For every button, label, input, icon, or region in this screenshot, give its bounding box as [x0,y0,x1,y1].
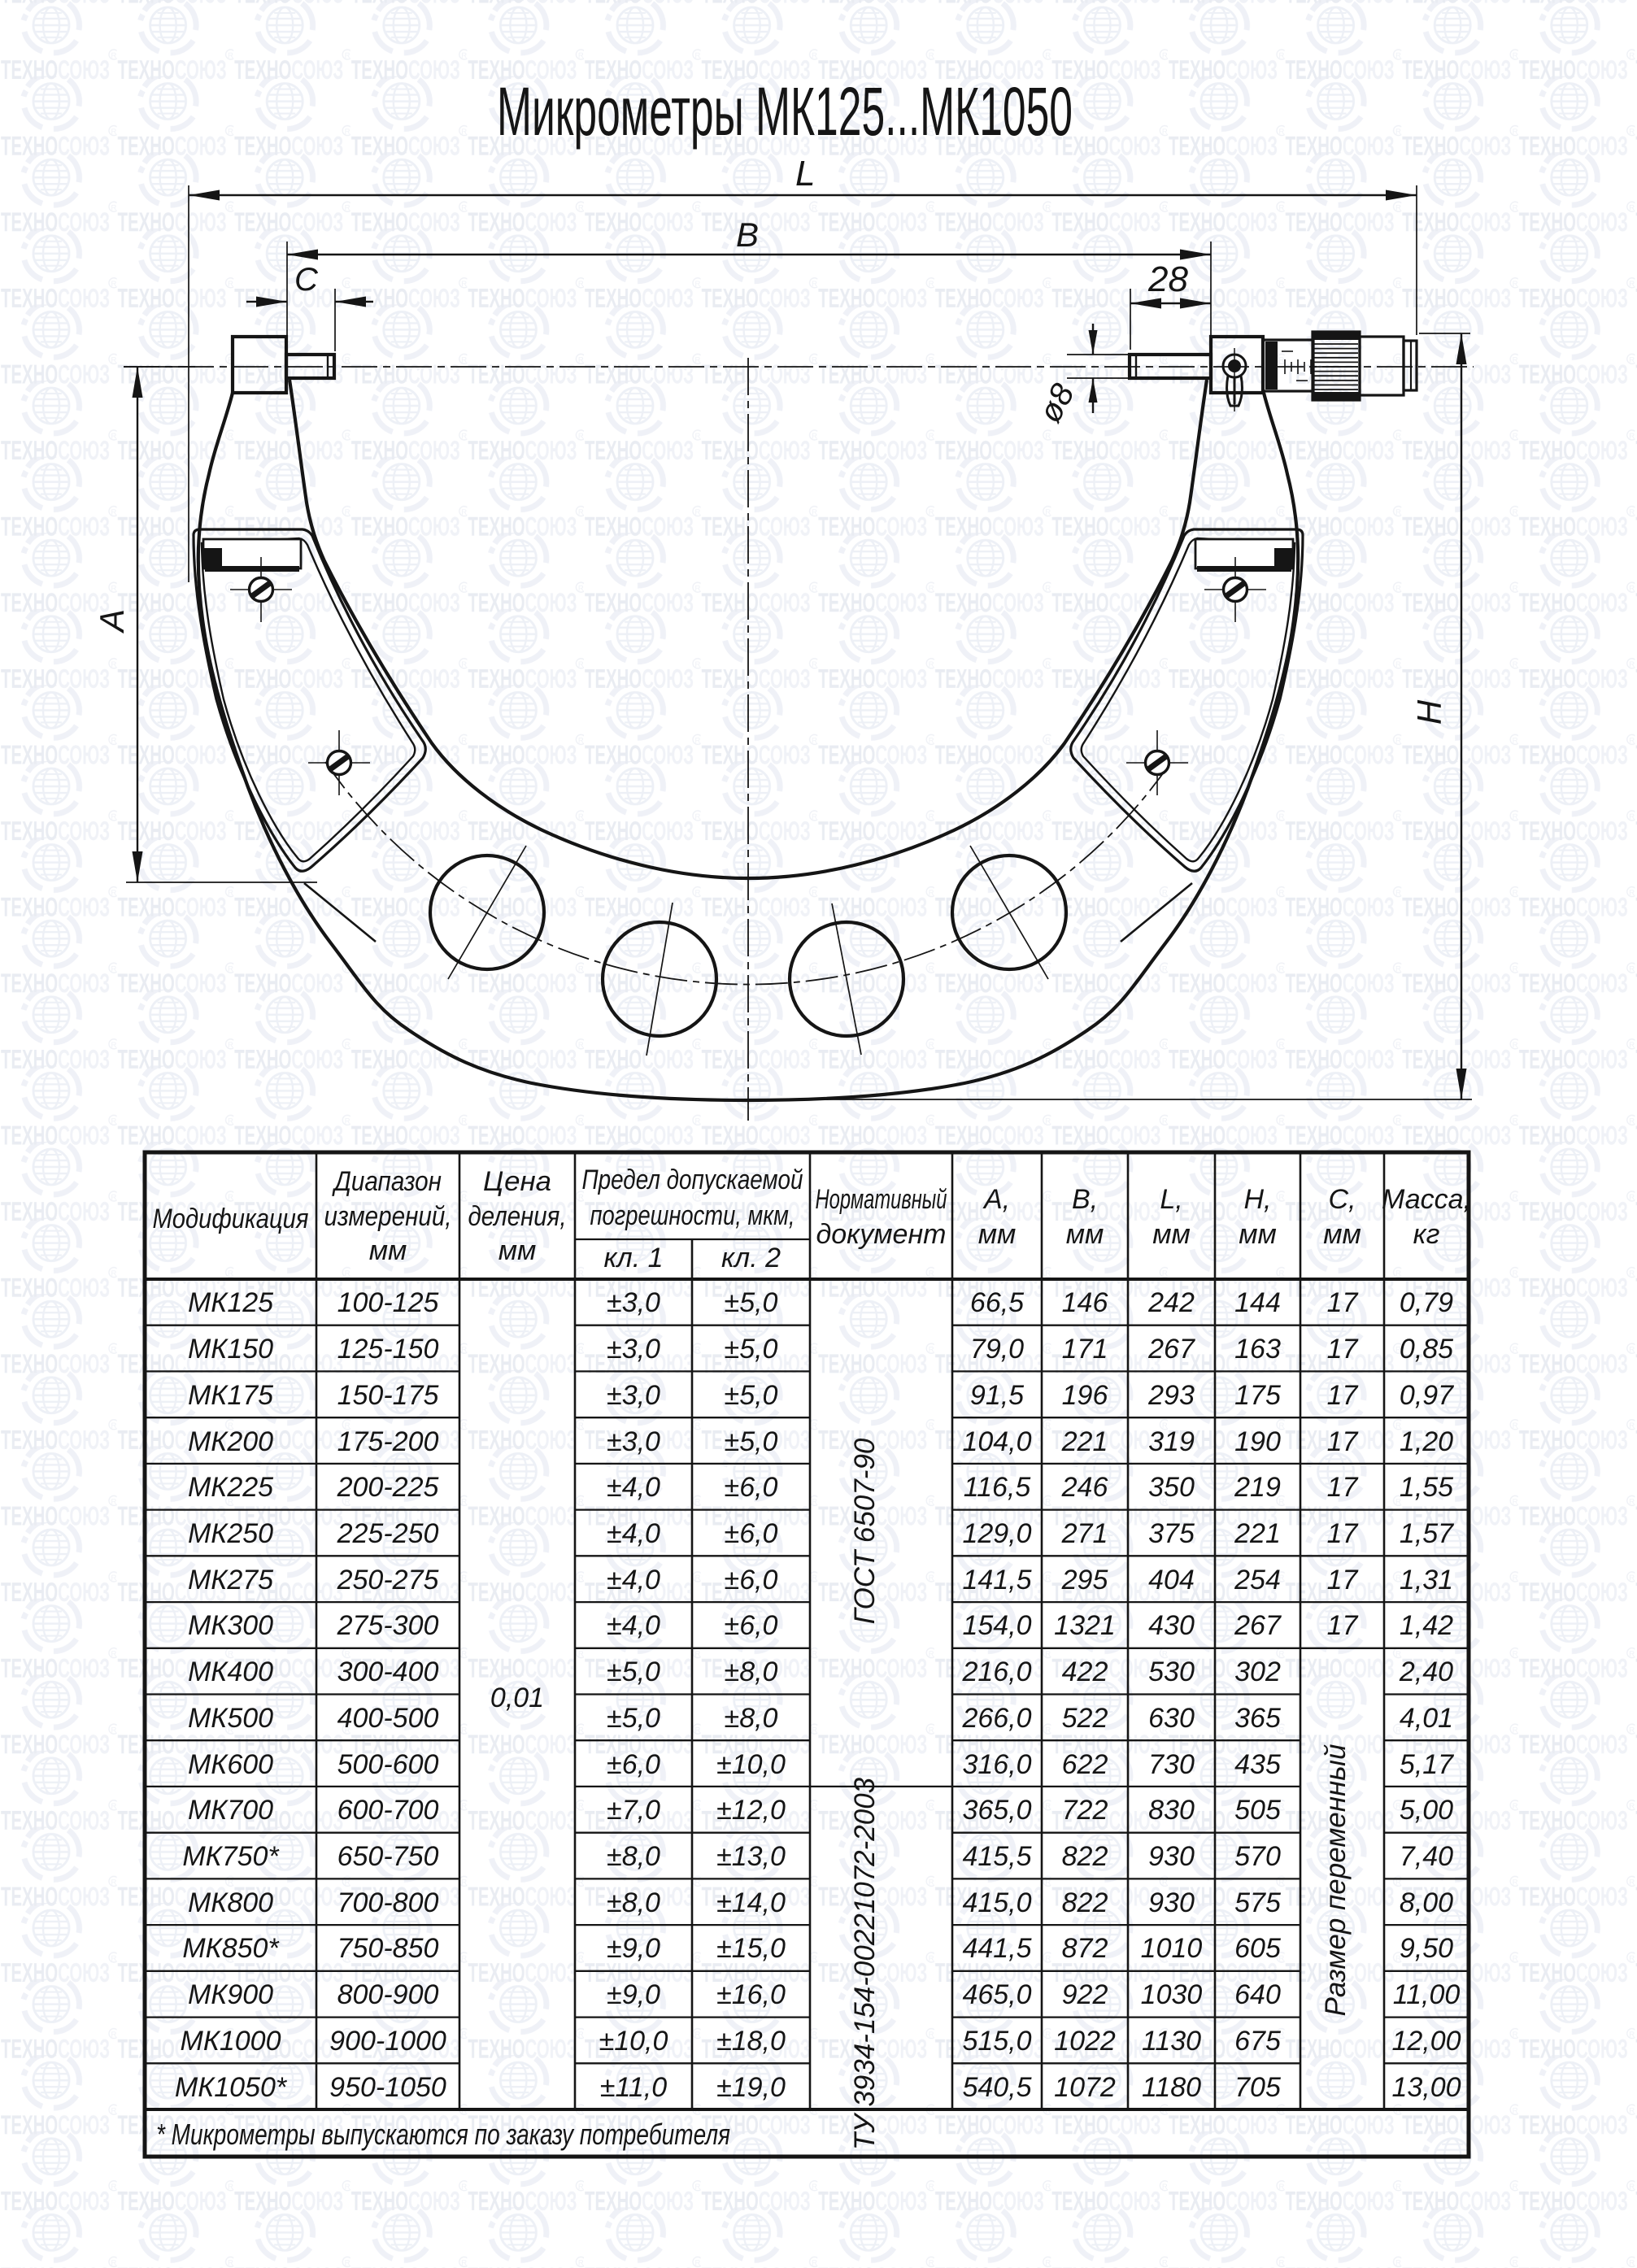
svg-text:Масса,: Масса, [1382,1184,1471,1215]
svg-text:5,17: 5,17 [1400,1749,1454,1780]
svg-text:1,31: 1,31 [1400,1565,1453,1595]
svg-text:622: 622 [1062,1749,1108,1780]
svg-text:±6,0: ±6,0 [725,1610,778,1641]
svg-text:216,0: 216,0 [961,1656,1031,1687]
svg-text:267: 267 [1234,1610,1282,1641]
svg-text:822: 822 [1062,1887,1108,1918]
svg-text:мм: мм [1323,1219,1361,1250]
svg-text:±4,0: ±4,0 [607,1518,660,1549]
svg-text:750-850: 750-850 [337,1933,439,1964]
svg-text:246: 246 [1061,1472,1108,1503]
svg-text:830: 830 [1148,1795,1195,1826]
svg-text:275-300: 275-300 [337,1610,439,1641]
svg-text:17: 17 [1327,1380,1359,1411]
svg-text:±10,0: ±10,0 [599,2026,668,2057]
svg-text:505: 505 [1234,1795,1281,1826]
svg-text:1072: 1072 [1054,2072,1116,2103]
svg-text:28: 28 [1147,259,1188,299]
svg-text:250-275: 250-275 [337,1565,439,1595]
svg-text:295: 295 [1061,1565,1108,1595]
svg-text:930: 930 [1148,1841,1195,1872]
svg-text:17: 17 [1327,1334,1359,1365]
svg-text:293: 293 [1147,1380,1195,1411]
svg-text:515,0: 515,0 [962,2026,1031,2057]
svg-text:221: 221 [1061,1426,1108,1457]
svg-text:7,40: 7,40 [1400,1841,1453,1872]
svg-text:±3,0: ±3,0 [607,1287,660,1318]
svg-text:17: 17 [1327,1287,1359,1318]
svg-text:950-1050: 950-1050 [329,2072,446,2103]
svg-text:1,55: 1,55 [1400,1472,1453,1503]
svg-text:822: 822 [1062,1841,1108,1872]
svg-text:271: 271 [1061,1518,1108,1549]
svg-text:13,00: 13,00 [1391,2072,1461,2103]
svg-text:17: 17 [1327,1565,1359,1595]
svg-text:5,00: 5,00 [1400,1795,1453,1826]
svg-text:430: 430 [1148,1610,1195,1641]
svg-text:±4,0: ±4,0 [607,1472,660,1503]
svg-text:±12,0: ±12,0 [716,1795,786,1826]
svg-text:±7,0: ±7,0 [607,1795,660,1826]
svg-text:МК600: МК600 [188,1749,273,1780]
svg-text:930: 930 [1148,1887,1195,1918]
svg-text:150-175: 150-175 [337,1380,439,1411]
svg-text:* Микрометры выпускаются по за: * Микрометры выпускаются по заказу потре… [156,2118,730,2151]
svg-text:730: 730 [1148,1749,1195,1780]
svg-text:МК900: МК900 [188,1979,273,2010]
svg-text:±5,0: ±5,0 [607,1656,660,1687]
svg-text:154,0: 154,0 [962,1610,1031,1641]
svg-text:500-600: 500-600 [337,1749,439,1780]
svg-text:1130: 1130 [1142,2026,1201,2057]
svg-text:В,: В, [1072,1184,1098,1215]
svg-text:±14,0: ±14,0 [716,1887,786,1918]
svg-text:17: 17 [1327,1426,1359,1457]
svg-text:600-700: 600-700 [337,1795,439,1826]
svg-text:МК125: МК125 [188,1287,273,1318]
svg-text:242: 242 [1147,1287,1195,1318]
svg-text:мм: мм [369,1235,407,1266]
svg-text:МК225: МК225 [188,1472,273,1503]
svg-text:922: 922 [1062,1979,1108,2010]
svg-text:316,0: 316,0 [962,1749,1031,1780]
svg-text:225-250: 225-250 [337,1518,439,1549]
svg-text:Диапазон: Диапазон [332,1166,442,1197]
svg-text:±8,0: ±8,0 [725,1703,778,1734]
svg-text:±6,0: ±6,0 [725,1518,778,1549]
svg-text:Н,: Н, [1244,1184,1272,1215]
svg-text:570: 570 [1234,1841,1281,1872]
svg-text:17: 17 [1327,1518,1359,1549]
svg-text:266,0: 266,0 [961,1703,1031,1734]
svg-text:415,0: 415,0 [962,1887,1031,1918]
svg-text:1321: 1321 [1054,1610,1116,1641]
svg-text:0,01: 0,01 [490,1682,544,1713]
svg-text:±8,0: ±8,0 [607,1841,660,1872]
svg-text:ГОСТ 6507-90: ГОСТ 6507-90 [849,1438,881,1624]
svg-text:±10,0: ±10,0 [716,1749,786,1780]
svg-text:Предел допускаемой: Предел допускаемой [582,1164,803,1195]
svg-text:404: 404 [1148,1565,1195,1595]
svg-text:0,85: 0,85 [1400,1334,1453,1365]
svg-text:±5,0: ±5,0 [725,1380,778,1411]
svg-text:МК250: МК250 [188,1518,273,1549]
svg-text:1,20: 1,20 [1400,1426,1453,1457]
svg-text:МК175: МК175 [188,1380,273,1411]
svg-text:мм: мм [1152,1219,1191,1250]
svg-text:±3,0: ±3,0 [607,1334,660,1365]
svg-text:700-800: 700-800 [337,1887,439,1918]
svg-text:219: 219 [1234,1472,1281,1503]
svg-text:171: 171 [1062,1334,1108,1365]
svg-text:146: 146 [1062,1287,1108,1318]
svg-text:МК400: МК400 [188,1656,273,1687]
svg-text:900-1000: 900-1000 [329,2026,446,2057]
svg-text:522: 522 [1062,1703,1108,1734]
svg-text:17: 17 [1327,1610,1359,1641]
svg-text:1030: 1030 [1141,1979,1203,2010]
svg-text:0,97: 0,97 [1400,1380,1454,1411]
svg-text:267: 267 [1147,1334,1195,1365]
svg-text:МК750*: МК750* [182,1841,280,1872]
svg-text:872: 872 [1062,1933,1108,1964]
svg-text:116,5: 116,5 [964,1472,1031,1503]
svg-text:МК850*: МК850* [182,1933,280,1964]
svg-text:435: 435 [1234,1749,1281,1780]
svg-text:1010: 1010 [1141,1933,1203,1964]
svg-text:319: 319 [1148,1426,1195,1457]
svg-text:±13,0: ±13,0 [716,1841,786,1872]
svg-text:196: 196 [1062,1380,1108,1411]
svg-text:±6,0: ±6,0 [607,1749,660,1780]
svg-text:800-900: 800-900 [337,1979,439,2010]
svg-text:221: 221 [1234,1518,1281,1549]
svg-text:ТУ 3934-154-00221072-2003: ТУ 3934-154-00221072-2003 [849,1777,881,2150]
svg-text:±3,0: ±3,0 [607,1380,660,1411]
svg-text:±19,0: ±19,0 [716,2072,786,2103]
svg-text:±4,0: ±4,0 [607,1565,660,1595]
svg-text:документ: документ [816,1219,946,1250]
svg-text:Нормативный: Нормативный [816,1184,947,1215]
svg-text:деления,: деления, [468,1201,567,1232]
svg-text:±5,0: ±5,0 [725,1287,778,1318]
svg-text:79,0: 79,0 [970,1334,1024,1365]
svg-text:±5,0: ±5,0 [725,1334,778,1365]
svg-text:мм: мм [1239,1219,1277,1250]
svg-text:254: 254 [1234,1565,1281,1595]
svg-text:605: 605 [1234,1933,1281,1964]
svg-text:415,5: 415,5 [962,1841,1031,1872]
svg-text:А: А [93,609,131,634]
svg-text:1180: 1180 [1142,2072,1201,2103]
svg-text:B: B [736,215,759,254]
svg-text:400-500: 400-500 [337,1703,439,1734]
svg-text:350: 350 [1148,1472,1195,1503]
svg-text:Размер переменный: Размер переменный [1320,1743,1352,2016]
svg-text:175-200: 175-200 [337,1426,439,1457]
svg-text:L,: L, [1160,1184,1182,1215]
svg-text:±5,0: ±5,0 [725,1426,778,1457]
svg-text:С,: С, [1329,1184,1356,1215]
svg-text:129,0: 129,0 [962,1518,1031,1549]
svg-text:А,: А, [982,1184,1010,1215]
svg-text:300-400: 300-400 [337,1656,439,1687]
svg-text:1,57: 1,57 [1400,1518,1454,1549]
svg-text:МК800: МК800 [188,1887,273,1918]
svg-text:МК275: МК275 [188,1565,273,1595]
svg-text:±8,0: ±8,0 [725,1656,778,1687]
svg-text:±11,0: ±11,0 [600,2072,667,2103]
svg-text:441,5: 441,5 [962,1933,1031,1964]
svg-text:705: 705 [1234,2072,1281,2103]
svg-text:422: 422 [1062,1656,1108,1687]
svg-text:кг: кг [1413,1219,1440,1250]
svg-text:200-225: 200-225 [337,1472,439,1503]
svg-text:±4,0: ±4,0 [607,1610,660,1641]
svg-text:91,5: 91,5 [970,1380,1024,1411]
svg-text:104,0: 104,0 [962,1426,1031,1457]
svg-text:66,5: 66,5 [970,1287,1024,1318]
svg-text:МК200: МК200 [188,1426,273,1457]
svg-text:675: 675 [1234,2026,1281,2057]
svg-text:МК300: МК300 [188,1610,273,1641]
svg-text:175: 175 [1234,1380,1281,1411]
svg-text:±6,0: ±6,0 [725,1472,778,1503]
svg-text:365: 365 [1234,1703,1281,1734]
svg-text:125-150: 125-150 [337,1334,439,1365]
svg-text:141,5: 141,5 [962,1565,1031,1595]
svg-text:530: 530 [1148,1656,1195,1687]
svg-text:302: 302 [1234,1656,1281,1687]
svg-text:630: 630 [1148,1703,1195,1734]
svg-text:11,00: 11,00 [1393,1979,1461,2010]
svg-text:кл. 1: кл. 1 [603,1243,663,1273]
svg-text:кл. 2: кл. 2 [721,1243,781,1273]
svg-text:Микрометры МК125...МК1050: Микрометры МК125...МК1050 [497,73,1073,150]
svg-text:МК1050*: МК1050* [175,2072,288,2103]
svg-text:погрешности, мкм,: погрешности, мкм, [590,1200,795,1231]
svg-text:17: 17 [1327,1472,1359,1503]
svg-text:1022: 1022 [1054,2026,1116,2057]
svg-text:±9,0: ±9,0 [607,1933,660,1964]
svg-text:575: 575 [1234,1887,1281,1918]
svg-text:±5,0: ±5,0 [607,1703,660,1734]
svg-text:12,00: 12,00 [1391,2026,1461,2057]
svg-text:Н: Н [1410,699,1448,725]
svg-text:9,50: 9,50 [1400,1933,1453,1964]
svg-text:1,42: 1,42 [1400,1610,1453,1641]
svg-text:±6,0: ±6,0 [725,1565,778,1595]
svg-text:Модификация: Модификация [153,1204,309,1234]
svg-text:±16,0: ±16,0 [716,1979,786,2010]
svg-text:465,0: 465,0 [962,1979,1031,2010]
svg-text:±8,0: ±8,0 [607,1887,660,1918]
svg-text:2,40: 2,40 [1399,1656,1453,1687]
svg-text:МК700: МК700 [188,1795,273,1826]
svg-text:±9,0: ±9,0 [607,1979,660,2010]
svg-text:540,5: 540,5 [962,2072,1031,2103]
svg-text:Цена: Цена [483,1166,551,1197]
svg-text:375: 375 [1148,1518,1195,1549]
svg-text:0,79: 0,79 [1400,1287,1453,1318]
svg-text:190: 190 [1234,1426,1281,1457]
svg-text:163: 163 [1234,1334,1281,1365]
svg-text:МК150: МК150 [188,1334,273,1365]
svg-text:мм: мм [978,1219,1017,1250]
svg-text:±15,0: ±15,0 [716,1933,786,1964]
svg-text:365,0: 365,0 [962,1795,1031,1826]
svg-text:C: C [294,262,319,298]
svg-text:±18,0: ±18,0 [716,2026,786,2057]
svg-text:измерений,: измерений, [324,1201,452,1232]
svg-text:722: 722 [1062,1795,1108,1826]
svg-text:100-125: 100-125 [337,1287,439,1318]
svg-text:640: 640 [1234,1979,1281,2010]
svg-text:650-750: 650-750 [337,1841,439,1872]
svg-text:МК500: МК500 [188,1703,273,1734]
svg-text:МК1000: МК1000 [181,2026,281,2057]
svg-text:мм: мм [499,1235,537,1266]
svg-text:мм: мм [1066,1219,1104,1250]
svg-text:144: 144 [1234,1287,1281,1318]
svg-text:8,00: 8,00 [1400,1887,1453,1918]
svg-text:L: L [795,154,815,194]
svg-text:4,01: 4,01 [1400,1703,1453,1734]
svg-text:±3,0: ±3,0 [607,1426,660,1457]
